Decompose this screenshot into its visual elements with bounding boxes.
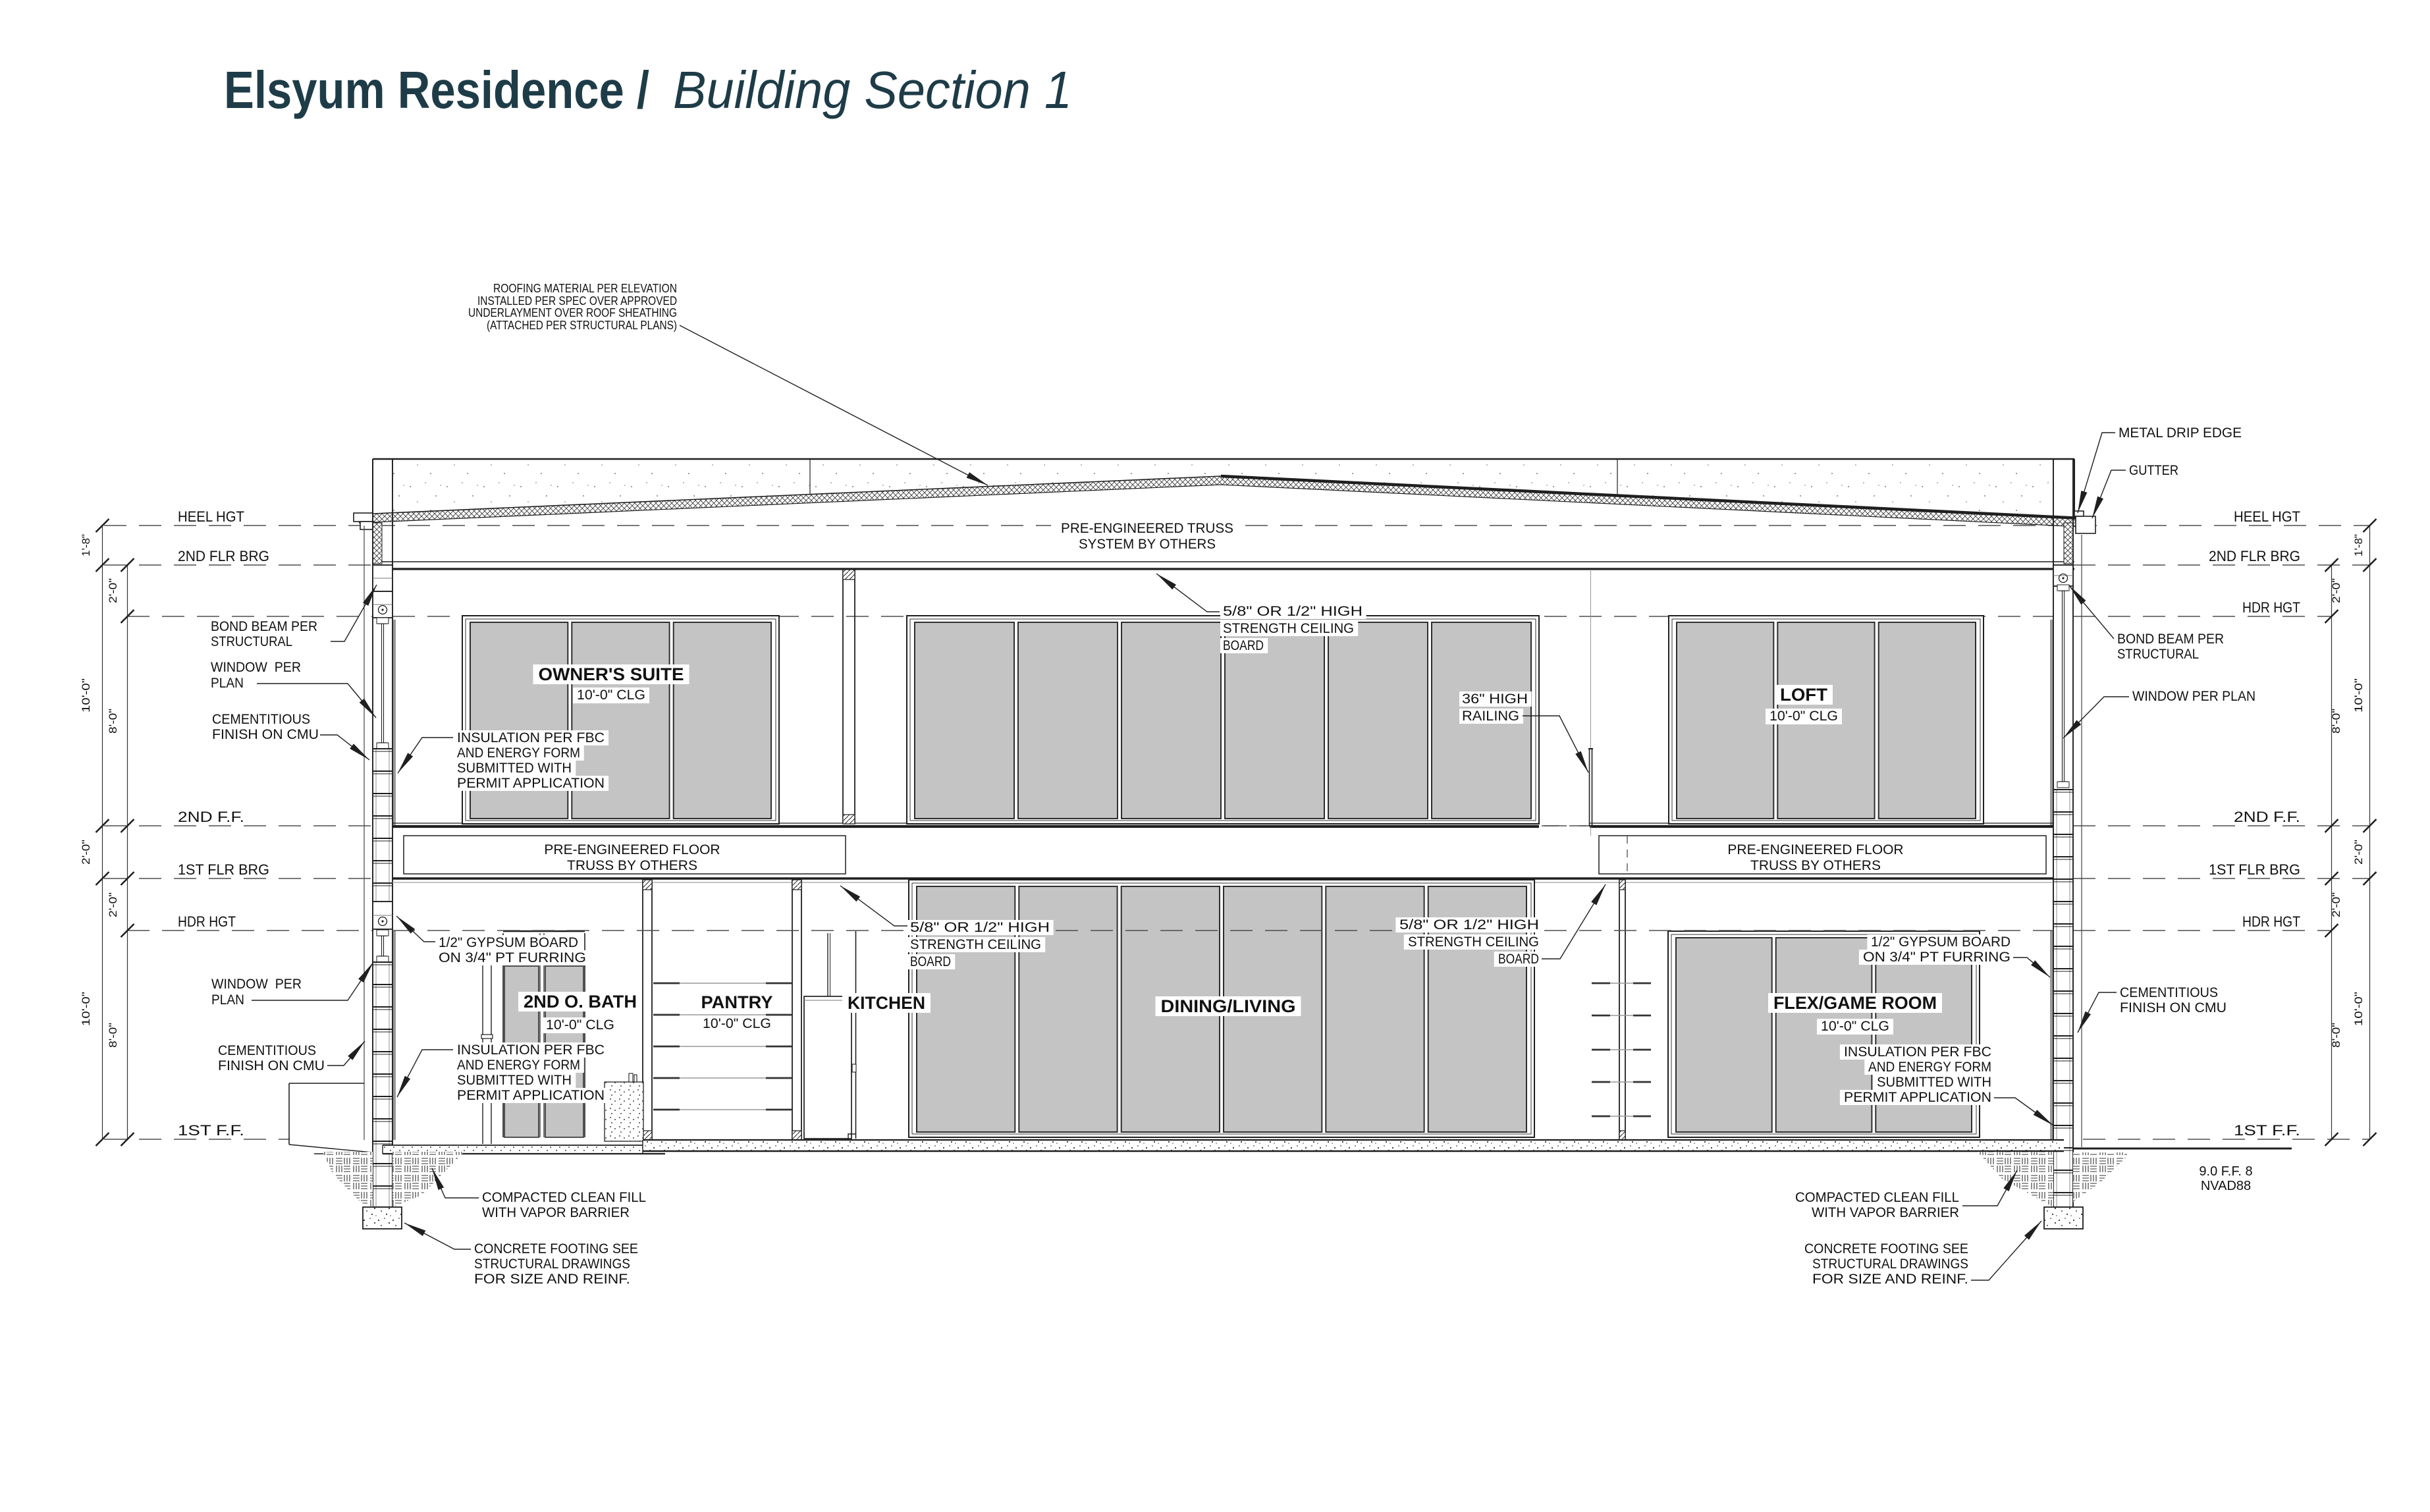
svg-text:PLAN: PLAN [211, 992, 244, 1008]
svg-text:36" HIGH: 36" HIGH [1462, 691, 1528, 707]
svg-text:1ST F.F.: 1ST F.F. [2234, 1122, 2300, 1139]
svg-text:(ATTACHED PER STRUCTURAL PLANS: (ATTACHED PER STRUCTURAL PLANS) [487, 318, 677, 332]
svg-text:WITH VAPOR BARRIER: WITH VAPOR BARRIER [482, 1204, 630, 1220]
svg-text:HEEL HGT: HEEL HGT [178, 508, 244, 525]
svg-text:FOR SIZE AND REINF.: FOR SIZE AND REINF. [474, 1271, 630, 1287]
svg-text:FINISH ON CMU: FINISH ON CMU [212, 726, 319, 742]
svg-text:PERMIT APPLICATION: PERMIT APPLICATION [457, 775, 605, 791]
svg-text:INSULATION PER FBC: INSULATION PER FBC [457, 730, 605, 745]
svg-text:FINISH ON CMU: FINISH ON CMU [2120, 1000, 2227, 1015]
svg-text:8'-0": 8'-0" [107, 709, 119, 734]
svg-text:INSULATION PER FBC: INSULATION PER FBC [1844, 1044, 1991, 1060]
svg-text:PRE-ENGINEERED FLOOR: PRE-ENGINEERED FLOOR [1727, 842, 1903, 857]
svg-text:SYSTEM BY OTHERS: SYSTEM BY OTHERS [1079, 537, 1216, 552]
svg-text:1'-8": 1'-8" [80, 534, 92, 556]
svg-text:2'-0": 2'-0" [2330, 892, 2342, 917]
svg-text:8'-0": 8'-0" [107, 1023, 119, 1048]
svg-text:1ST FLR BRG: 1ST FLR BRG [2209, 861, 2300, 878]
svg-text:HDR HGT: HDR HGT [2242, 599, 2300, 616]
svg-text:STRUCTURAL: STRUCTURAL [2117, 646, 2199, 662]
svg-text:2ND O. BATH: 2ND O. BATH [524, 992, 637, 1012]
svg-text:10'-0": 10'-0" [80, 992, 92, 1026]
svg-text:HDR HGT: HDR HGT [178, 913, 236, 930]
svg-text:BOARD: BOARD [1223, 637, 1264, 653]
svg-text:CEMENTITIOUS: CEMENTITIOUS [212, 711, 310, 727]
svg-text:INSULATION PER FBC: INSULATION PER FBC [457, 1042, 605, 1058]
svg-text:RAILING: RAILING [1462, 708, 1519, 724]
svg-text:AND ENERGY FORM: AND ENERGY FORM [1868, 1059, 1991, 1075]
svg-text:8'-0": 8'-0" [2330, 1023, 2342, 1048]
svg-text:HEEL HGT: HEEL HGT [2234, 508, 2300, 525]
svg-text:2ND FLR BRG: 2ND FLR BRG [178, 548, 269, 564]
svg-text:OWNER'S SUITE: OWNER'S SUITE [539, 664, 684, 684]
svg-text:PANTRY: PANTRY [701, 992, 773, 1012]
svg-text:WITH VAPOR BARRIER: WITH VAPOR BARRIER [1812, 1204, 1959, 1220]
svg-text:CEMENTITIOUS: CEMENTITIOUS [218, 1042, 316, 1058]
svg-text:BOND BEAM PER: BOND BEAM PER [211, 618, 317, 634]
svg-text:AND ENERGY FORM: AND ENERGY FORM [457, 1057, 580, 1073]
svg-text:TRUSS BY OTHERS: TRUSS BY OTHERS [567, 858, 697, 873]
svg-text:COMPACTED CLEAN FILL: COMPACTED CLEAN FILL [1795, 1189, 1959, 1205]
svg-text:1ST F.F.: 1ST F.F. [178, 1122, 244, 1139]
svg-text:WINDOW PER PLAN: WINDOW PER PLAN [2132, 688, 2255, 704]
svg-text:FINISH ON CMU: FINISH ON CMU [218, 1058, 325, 1073]
svg-text:BOND BEAM PER: BOND BEAM PER [2117, 631, 2224, 647]
svg-text:STRUCTURAL: STRUCTURAL [211, 634, 292, 649]
svg-text:PLAN: PLAN [211, 675, 244, 691]
svg-text:PERMIT APPLICATION: PERMIT APPLICATION [457, 1087, 605, 1103]
svg-text:ON 3/4" PT FURRING: ON 3/4" PT FURRING [439, 950, 586, 965]
svg-text:8'-0": 8'-0" [2330, 709, 2342, 734]
svg-text:10'-0" CLG: 10'-0" CLG [1821, 1019, 1889, 1034]
svg-text:WINDOW PER: WINDOW PER [211, 976, 302, 992]
svg-text:GUTTER: GUTTER [2129, 462, 2178, 478]
svg-text:FLEX/GAME ROOM: FLEX/GAME ROOM [1773, 993, 1937, 1013]
svg-text:SUBMITTED WITH: SUBMITTED WITH [457, 1072, 572, 1088]
svg-text:10'-0" CLG: 10'-0" CLG [703, 1016, 771, 1031]
svg-text:BOARD: BOARD [910, 954, 951, 969]
svg-text:2'-0": 2'-0" [2330, 578, 2342, 603]
svg-text:10'-0" CLG: 10'-0" CLG [1769, 709, 1838, 724]
svg-text:Building Section 1: Building Section 1 [673, 61, 1072, 119]
svg-text:1/2" GYPSUM BOARD: 1/2" GYPSUM BOARD [439, 934, 578, 950]
svg-text:5/8" OR 1/2" HIGH: 5/8" OR 1/2" HIGH [910, 919, 1050, 935]
svg-text:PERMIT APPLICATION: PERMIT APPLICATION [1844, 1089, 1991, 1105]
svg-text:CEMENTITIOUS: CEMENTITIOUS [2120, 985, 2218, 1000]
svg-text:2'-0": 2'-0" [107, 578, 119, 603]
svg-text:9.0 F.F. 8: 9.0 F.F. 8 [2199, 1164, 2252, 1179]
svg-text:ROOFING MATERIAL PER ELEVATION: ROOFING MATERIAL PER ELEVATION [493, 281, 677, 295]
svg-text:1/2" GYPSUM BOARD: 1/2" GYPSUM BOARD [1871, 934, 2011, 950]
svg-text:SUBMITTED WITH: SUBMITTED WITH [457, 760, 572, 776]
svg-text:10'-0": 10'-0" [2352, 678, 2365, 713]
svg-text:COMPACTED CLEAN FILL: COMPACTED CLEAN FILL [482, 1189, 646, 1205]
svg-text:2'-0": 2'-0" [2352, 840, 2365, 865]
svg-text:5/8" OR 1/2" HIGH: 5/8" OR 1/2" HIGH [1223, 603, 1363, 619]
svg-text:2'-0": 2'-0" [80, 840, 92, 865]
svg-text:CONCRETE FOOTING SEE: CONCRETE FOOTING SEE [1804, 1241, 1968, 1256]
svg-text:10'-0": 10'-0" [2352, 992, 2365, 1026]
svg-text:10'-0": 10'-0" [80, 678, 92, 713]
svg-text:NVAD88: NVAD88 [2201, 1179, 2251, 1193]
svg-text:UNDERLAYMENT OVER ROOF SHEATHI: UNDERLAYMENT OVER ROOF SHEATHING [468, 306, 677, 319]
svg-text:STRENGTH CEILING: STRENGTH CEILING [910, 936, 1041, 952]
svg-text:PRE-ENGINEERED FLOOR: PRE-ENGINEERED FLOOR [544, 842, 720, 857]
svg-text:1ST FLR BRG: 1ST FLR BRG [178, 861, 269, 878]
svg-text:METAL DRIP EDGE: METAL DRIP EDGE [2119, 425, 2242, 441]
svg-text:2'-0": 2'-0" [107, 892, 119, 917]
svg-text:2ND F.F.: 2ND F.F. [178, 809, 244, 825]
svg-text:CONCRETE FOOTING SEE: CONCRETE FOOTING SEE [474, 1241, 638, 1256]
svg-text:DINING/LIVING: DINING/LIVING [1161, 996, 1296, 1016]
svg-text:TRUSS BY OTHERS: TRUSS BY OTHERS [1750, 858, 1881, 873]
svg-text:KITCHEN: KITCHEN [848, 993, 925, 1013]
svg-text:PRE-ENGINEERED TRUSS: PRE-ENGINEERED TRUSS [1061, 521, 1233, 536]
svg-text:ON 3/4" PT FURRING: ON 3/4" PT FURRING [1863, 949, 2011, 965]
svg-text:STRUCTURAL DRAWINGS: STRUCTURAL DRAWINGS [474, 1256, 630, 1272]
svg-text:2ND F.F.: 2ND F.F. [2234, 809, 2300, 825]
svg-text:LOFT: LOFT [1780, 685, 1828, 705]
svg-text:WINDOW PER: WINDOW PER [211, 659, 301, 675]
svg-text:FOR SIZE AND REINF.: FOR SIZE AND REINF. [1812, 1271, 1968, 1287]
svg-text:HDR HGT: HDR HGT [2242, 913, 2300, 930]
svg-text:2ND FLR BRG: 2ND FLR BRG [2209, 548, 2300, 564]
svg-text:SUBMITTED WITH: SUBMITTED WITH [1877, 1074, 1991, 1090]
svg-text:Elsyum Residence /: Elsyum Residence / [224, 61, 649, 119]
svg-text:BOARD: BOARD [1498, 951, 1539, 967]
svg-text:AND ENERGY FORM: AND ENERGY FORM [457, 745, 580, 761]
svg-text:STRENGTH CEILING: STRENGTH CEILING [1408, 934, 1539, 950]
svg-text:10'-0" CLG: 10'-0" CLG [577, 688, 645, 703]
svg-text:STRUCTURAL DRAWINGS: STRUCTURAL DRAWINGS [1812, 1256, 1968, 1272]
svg-text:1'-8": 1'-8" [2352, 534, 2365, 556]
svg-text:10'-0" CLG: 10'-0" CLG [546, 1017, 614, 1033]
svg-text:STRENGTH CEILING: STRENGTH CEILING [1223, 620, 1354, 636]
svg-text:5/8" OR 1/2" HIGH: 5/8" OR 1/2" HIGH [1399, 917, 1539, 932]
